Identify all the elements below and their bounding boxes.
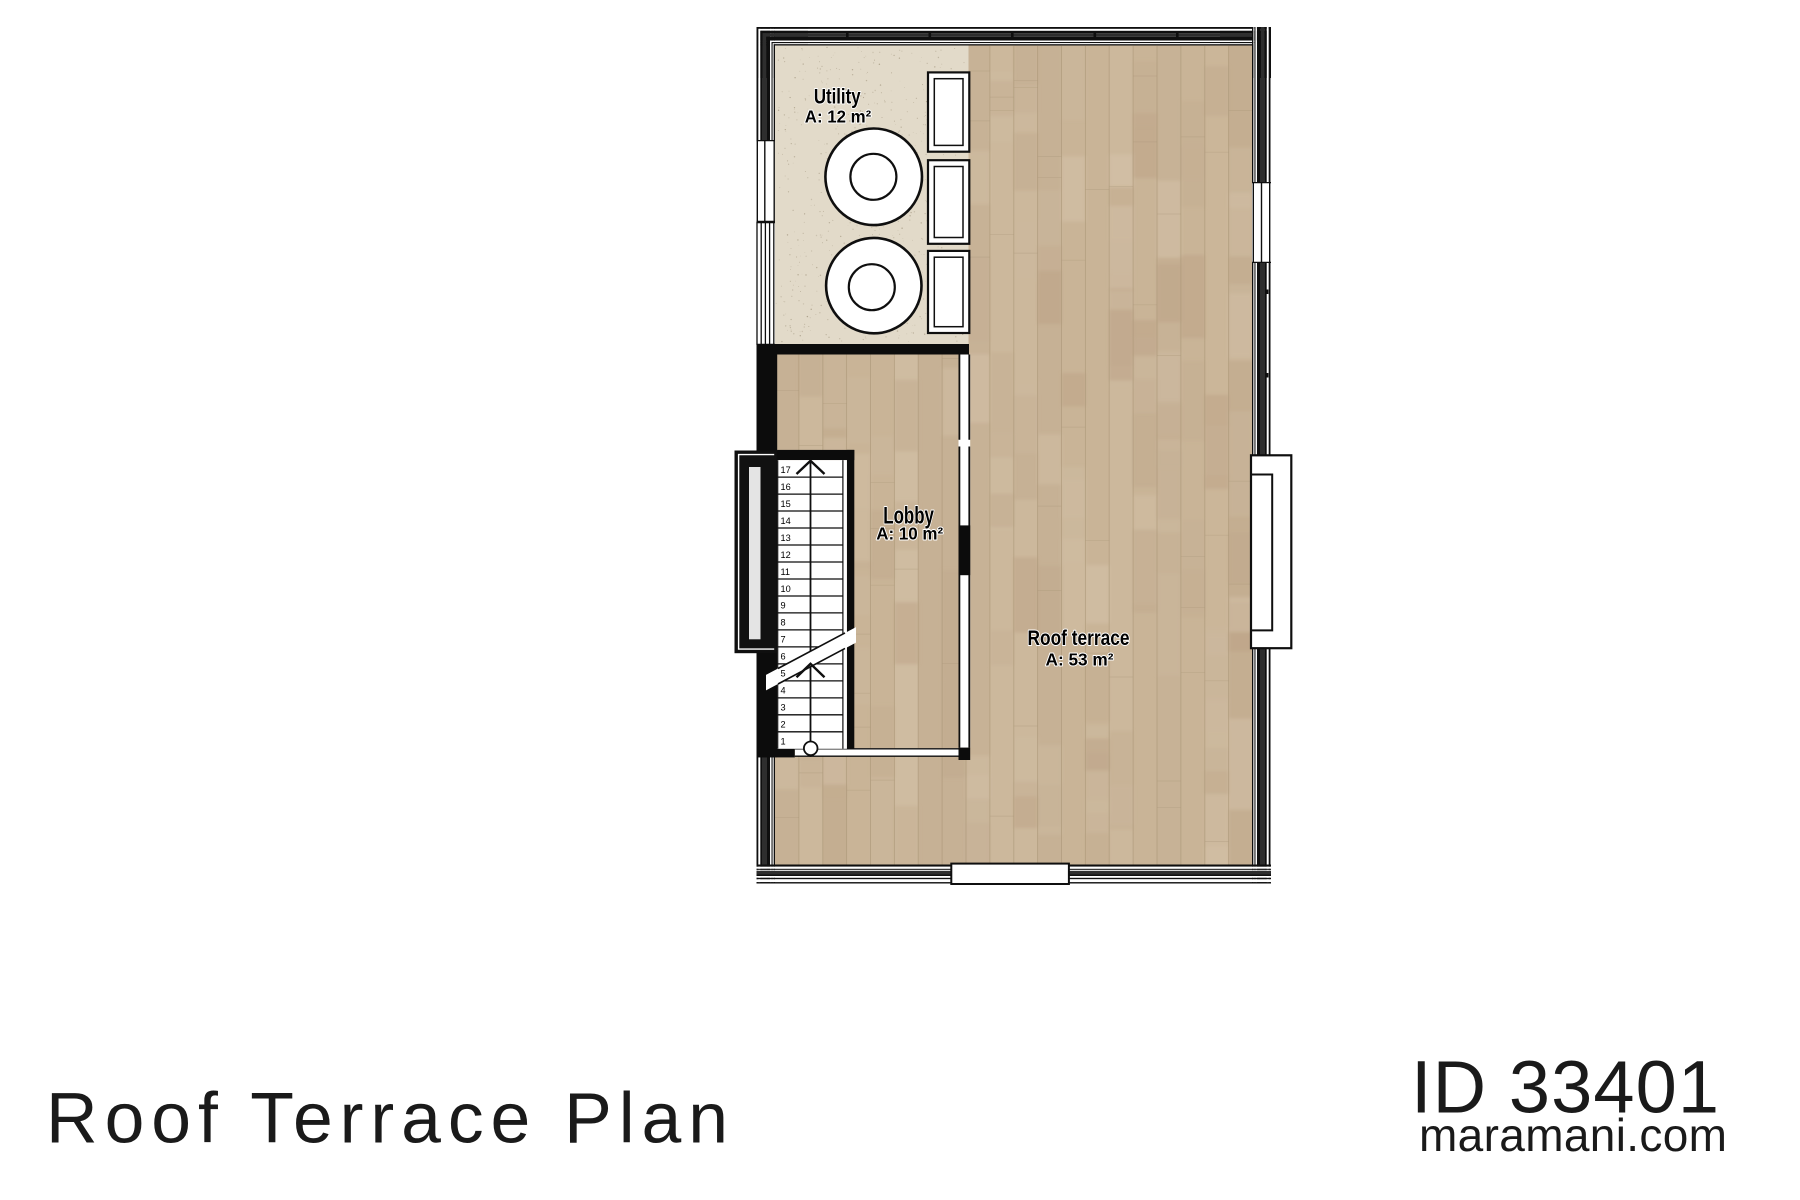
svg-text:17: 17 bbox=[781, 465, 791, 475]
svg-text:7: 7 bbox=[781, 635, 786, 645]
svg-text:4: 4 bbox=[781, 686, 786, 696]
svg-text:Utility: Utility bbox=[814, 83, 861, 108]
svg-text:13: 13 bbox=[781, 533, 791, 543]
svg-text:maramani.com: maramani.com bbox=[1419, 1109, 1727, 1161]
svg-text:A: 53 m²: A: 53 m² bbox=[1046, 649, 1114, 669]
svg-text:A: 12 m²: A: 12 m² bbox=[805, 106, 872, 126]
svg-text:15: 15 bbox=[781, 499, 791, 509]
svg-text:6: 6 bbox=[781, 652, 786, 662]
svg-text:3: 3 bbox=[781, 703, 786, 713]
svg-text:1: 1 bbox=[781, 737, 786, 747]
svg-text:Roof terrace: Roof terrace bbox=[1028, 627, 1130, 650]
svg-text:11: 11 bbox=[781, 567, 791, 577]
svg-text:16: 16 bbox=[781, 482, 791, 492]
svg-text:Roof Terrace Plan: Roof Terrace Plan bbox=[46, 1079, 728, 1159]
svg-text:A: 10 m²: A: 10 m² bbox=[876, 524, 943, 544]
svg-text:5: 5 bbox=[781, 669, 786, 679]
svg-text:2: 2 bbox=[781, 720, 786, 730]
svg-text:14: 14 bbox=[781, 516, 791, 526]
svg-text:10: 10 bbox=[781, 584, 791, 594]
svg-text:12: 12 bbox=[781, 550, 791, 560]
svg-text:8: 8 bbox=[781, 618, 786, 628]
svg-text:9: 9 bbox=[781, 601, 786, 611]
